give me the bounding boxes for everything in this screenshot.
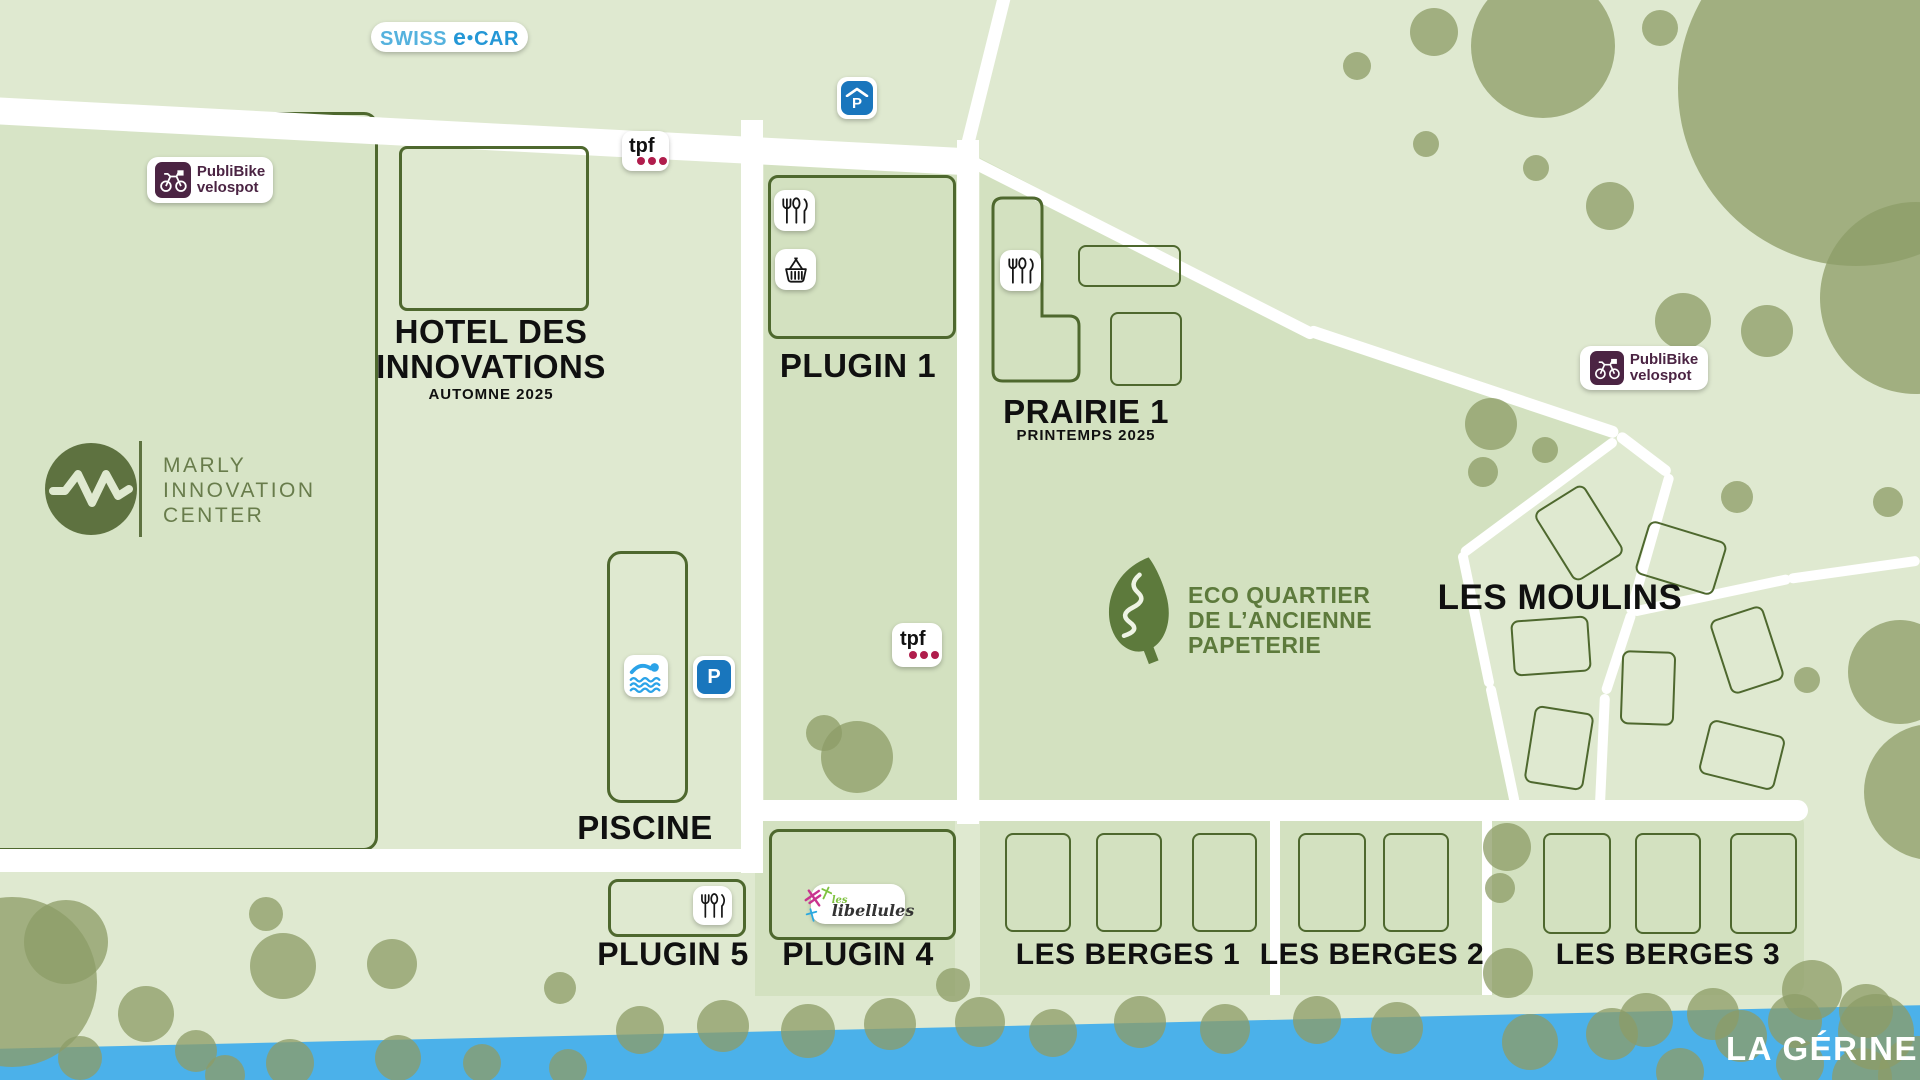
tree [806, 715, 842, 751]
tree [1873, 487, 1903, 517]
parking-icon: P [697, 660, 731, 694]
building-prairie1-b [1078, 245, 1181, 287]
zone-label-prairie1: PRAIRIE 1 [1003, 393, 1169, 431]
wave-icon [45, 443, 137, 535]
tree [697, 1000, 749, 1052]
restaurant-marker-prairie1[interactable] [1000, 250, 1041, 291]
building-berges3-a [1543, 833, 1611, 934]
tree [1619, 993, 1673, 1047]
swimmer-icon [627, 657, 665, 695]
tree [1029, 1009, 1077, 1057]
map-canvas: LA GÉRINE SWISS e●CAR [0, 0, 1920, 1080]
zone-label-plugin4: PLUGIN 4 [782, 936, 934, 973]
building-moulins-d [1620, 650, 1677, 726]
tree [1741, 305, 1793, 357]
tree [544, 972, 576, 1004]
tree [1483, 948, 1533, 998]
building-prairie1-L [990, 196, 1090, 386]
tree [1413, 131, 1439, 157]
tree [367, 939, 417, 989]
tree [118, 986, 174, 1042]
footpath [1615, 430, 1673, 478]
tpf-marker-south[interactable]: tpf [892, 623, 942, 667]
libellules-marker[interactable]: les libellules [811, 884, 905, 924]
tree [781, 1004, 835, 1058]
tpf-dot [648, 157, 656, 165]
tpf-dot [931, 651, 939, 659]
restaurant-icon [1003, 253, 1039, 289]
building-hotel [399, 146, 589, 311]
swimming-marker[interactable] [624, 655, 668, 697]
tree [1721, 481, 1753, 513]
tree [375, 1035, 421, 1080]
tree [1655, 293, 1711, 349]
building-moulins-e [1708, 604, 1785, 695]
libellules-label: les libellules [832, 893, 915, 916]
building-moulins-c [1510, 615, 1592, 676]
tree [1485, 873, 1515, 903]
tpf-dot [909, 651, 917, 659]
building-berges3-c [1730, 833, 1797, 934]
tree [1471, 0, 1615, 118]
bike-icon [1590, 351, 1624, 385]
tpf-marker-north[interactable]: tpf [622, 131, 669, 171]
tree [1114, 996, 1166, 1048]
tpf-label: tpf [900, 629, 926, 649]
publibike-marker-west[interactable]: PubliBikevelospot [147, 157, 273, 203]
publibike-marker-east[interactable]: PubliBikevelospot [1580, 346, 1708, 390]
tpf-label: tpf [629, 136, 655, 156]
tree [1794, 667, 1820, 693]
road-left-band [0, 849, 763, 872]
restaurant-marker-plugin5[interactable] [693, 886, 732, 925]
building-berges3-b [1635, 833, 1701, 934]
tree [250, 933, 316, 999]
tpf-dot [659, 157, 667, 165]
tree [955, 997, 1005, 1047]
publibike-label: PubliBikevelospot [1630, 352, 1698, 384]
building-moulins-g [1523, 705, 1594, 791]
zone-label-moulins: LES MOULINS [1438, 578, 1683, 618]
publibike-label: PubliBikevelospot [197, 164, 265, 196]
building-berges1-c [1192, 833, 1257, 932]
eco-quartier-label: ECO QUARTIER DE L’ANCIENNE PAPETERIE [1188, 583, 1372, 658]
road-vertical-east [957, 140, 979, 824]
tpf-dot [637, 157, 645, 165]
covered-parking-marker[interactable]: P [837, 77, 877, 119]
tree [58, 1036, 102, 1080]
tree [1586, 182, 1634, 230]
covered-parking-icon: P [841, 81, 873, 115]
footpath [1787, 556, 1920, 584]
tree [1410, 8, 1458, 56]
tree [936, 968, 970, 1002]
zone-date-prairie1: PRINTEMPS 2025 [1016, 427, 1155, 444]
tree [24, 900, 108, 984]
river-label: LA GÉRINE [1726, 1030, 1918, 1068]
tree [1200, 1004, 1250, 1054]
restaurant-icon [696, 889, 730, 923]
tpf-dot [920, 651, 928, 659]
tree [1848, 620, 1920, 724]
tree [463, 1044, 501, 1080]
tree [616, 1006, 664, 1054]
zone-label-hotel: HOTEL DESINNOVATIONS [376, 314, 606, 384]
tree [1343, 52, 1371, 80]
tree [1371, 1002, 1423, 1054]
tree [1864, 724, 1920, 860]
building-berges1-a [1005, 833, 1071, 932]
zone-label-berges1: LES BERGES 1 [1016, 938, 1240, 972]
parking-marker-piscine[interactable]: P [693, 656, 735, 698]
tree [1468, 457, 1498, 487]
building-moulins-f [1697, 718, 1786, 791]
tree [266, 1039, 314, 1080]
tree [549, 1049, 587, 1080]
mic-logo-text: MARLY INNOVATION CENTER [163, 453, 316, 528]
zone-date-hotel: AUTOMNE 2025 [428, 386, 553, 403]
shop-marker-plugin1[interactable] [775, 249, 816, 290]
tree [1523, 155, 1549, 181]
road-vertical-west [741, 120, 763, 873]
footpath [1595, 694, 1610, 806]
leaf-icon [1094, 551, 1186, 677]
zone-label-berges2: LES BERGES 2 [1260, 938, 1484, 972]
tree [249, 897, 283, 931]
tree [1465, 398, 1517, 450]
building-prairie1-c [1110, 312, 1182, 386]
zone-label-plugin5: PLUGIN 5 [597, 936, 749, 973]
tree [1532, 437, 1558, 463]
building-berges2-b [1383, 833, 1449, 932]
tree [1293, 996, 1341, 1044]
swiss-ecar-marker[interactable]: SWISS e●CAR [371, 22, 528, 52]
swiss-ecar-logo: SWISS e●CAR [380, 24, 519, 51]
basket-icon [778, 252, 814, 288]
building-berges2-a [1298, 833, 1366, 932]
building-berges1-b [1096, 833, 1162, 932]
tree [1483, 823, 1531, 871]
tree [1642, 10, 1678, 46]
dragonfly-icon [802, 886, 832, 922]
zone-label-plugin1: PLUGIN 1 [780, 347, 936, 385]
zone-label-berges3: LES BERGES 3 [1556, 938, 1780, 972]
mic-logo-divider [139, 441, 142, 537]
tree [864, 998, 916, 1050]
tree [1502, 1014, 1558, 1070]
zone-label-piscine: PISCINE [577, 809, 713, 847]
restaurant-marker-plugin1[interactable] [774, 190, 815, 231]
bike-icon [155, 162, 191, 198]
restaurant-icon [777, 193, 813, 229]
